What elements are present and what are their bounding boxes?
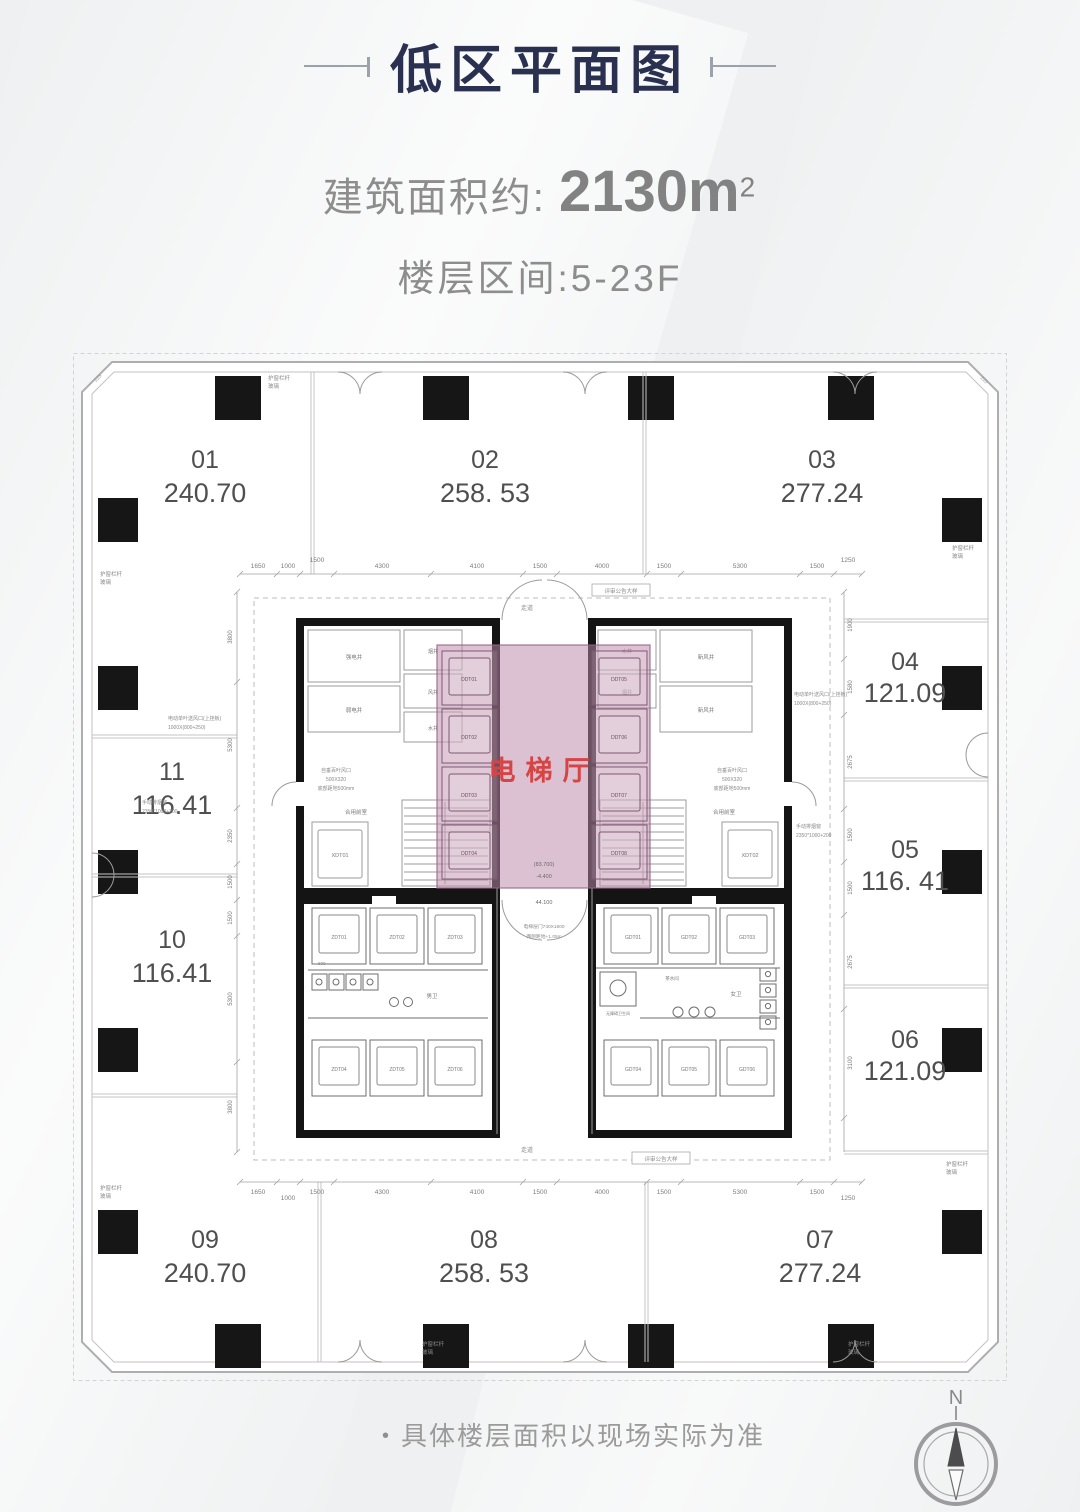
svg-text:5300: 5300 <box>228 738 234 752</box>
elevator-label: ZDT03 <box>447 935 463 941</box>
room-label: 新风井 <box>698 653 715 661</box>
elevator-label: DDT03 <box>461 793 477 799</box>
column <box>215 376 261 420</box>
svg-text:护窗栏杆: 护窗栏杆 <box>268 374 291 382</box>
svg-text:1500: 1500 <box>848 881 854 895</box>
area-sup: 2 <box>740 172 758 203</box>
column <box>942 666 982 710</box>
door-gap <box>784 782 792 806</box>
svg-text:4300: 4300 <box>375 563 390 570</box>
svg-text:玻璃: 玻璃 <box>952 552 964 560</box>
svg-text:258. 53: 258. 53 <box>439 1258 529 1288</box>
svg-text:1500: 1500 <box>657 563 672 570</box>
door-gap <box>296 782 304 806</box>
svg-text:03: 03 <box>808 446 836 474</box>
elevator-label: DDT08 <box>611 851 627 857</box>
column <box>423 376 469 420</box>
floor-plan-svg: 225 225 <box>72 352 1008 1382</box>
svg-text:护窗栏杆: 护窗栏杆 <box>422 1340 445 1348</box>
svg-text:10: 10 <box>158 926 186 954</box>
elevator-label: GDT06 <box>739 1067 755 1073</box>
elevator-label: DDT04 <box>461 851 477 857</box>
svg-text:1000X(800+250): 1000X(800+250) <box>794 701 832 707</box>
column <box>828 376 874 420</box>
column <box>98 666 138 710</box>
sample-label: 评审公告大样 <box>604 587 638 595</box>
svg-text:1250: 1250 <box>841 557 856 564</box>
svg-text:1500: 1500 <box>310 557 325 564</box>
elevator-hall-label: 电梯厅 <box>489 756 600 786</box>
svg-text:1900: 1900 <box>848 618 854 632</box>
elevator-label: GDT04 <box>625 1067 641 1073</box>
column <box>942 1210 982 1254</box>
svg-text:1500: 1500 <box>533 1189 548 1196</box>
svg-text:1000: 1000 <box>281 1195 296 1202</box>
vent-note: 500X320 <box>722 777 742 783</box>
svg-text:1500: 1500 <box>228 875 234 889</box>
title-rule-right <box>710 65 776 67</box>
svg-text:电动单叶送风口(上挂板): 电动单叶送风口(上挂板) <box>794 691 848 698</box>
svg-text:玻璃: 玻璃 <box>100 578 112 586</box>
elevator-label: ZDT05 <box>389 1067 405 1073</box>
svg-text:1500: 1500 <box>810 1189 825 1196</box>
door-note: 两侧距地+1.05m <box>526 933 561 940</box>
door-note: 电梯层门740X1800 <box>523 923 564 930</box>
svg-text:121.09: 121.09 <box>864 1056 947 1086</box>
vent-note: 底部距地500mm <box>318 785 355 792</box>
vent-note: 自垂百叶风口 <box>717 767 747 774</box>
dim-note: 600 <box>318 961 326 966</box>
svg-text:08: 08 <box>470 1226 498 1254</box>
column <box>942 1028 982 1072</box>
area-label: 建筑面积约: <box>323 176 546 220</box>
elevator-label: GDT05 <box>681 1067 697 1073</box>
elevator-label: GDT01 <box>625 935 641 941</box>
footnote-text: 具体楼层面积以现场实际为准 <box>401 1421 765 1451</box>
elevator-label: ZDT02 <box>389 935 405 941</box>
svg-text:06: 06 <box>891 1026 919 1054</box>
room-label: 茶水间 <box>665 975 679 982</box>
svg-text:2350*1000+200: 2350*1000+200 <box>796 833 832 839</box>
svg-text:1500: 1500 <box>657 1189 672 1196</box>
door-gap <box>692 896 716 904</box>
svg-text:04: 04 <box>891 648 919 676</box>
svg-text:4000: 4000 <box>595 1189 610 1196</box>
svg-text:07: 07 <box>806 1226 834 1254</box>
elevator-label: GDT02 <box>681 935 697 941</box>
svg-text:1000: 1000 <box>281 563 296 570</box>
title-rule-left <box>304 65 370 67</box>
svg-text:护窗栏杆: 护窗栏杆 <box>100 1184 123 1192</box>
svg-text:1500: 1500 <box>533 563 548 570</box>
svg-text:1650: 1650 <box>251 1189 266 1196</box>
svg-text:2675: 2675 <box>848 955 854 969</box>
room-label: 弱电井 <box>346 706 363 714</box>
svg-text:玻璃: 玻璃 <box>946 1168 958 1176</box>
room-label: 走道 <box>521 1146 533 1154</box>
door-gap <box>372 896 396 904</box>
elevator-label: DDT02 <box>461 735 477 741</box>
core-right-lower: 无障碍卫生间 茶水间 女卫 GDT01 GDT02 GDT03 GDT04 GD… <box>592 896 788 1134</box>
elevator-label: ZDT06 <box>447 1067 463 1073</box>
svg-text:116. 41: 116. 41 <box>861 866 949 896</box>
vent-note: 底部距地500mm <box>714 785 751 792</box>
svg-text:258. 53: 258. 53 <box>440 478 530 508</box>
elevator-label: ZDT04 <box>331 1067 347 1073</box>
page-title: 低区平面图 <box>390 28 690 103</box>
svg-text:277.24: 277.24 <box>779 1258 862 1288</box>
column <box>215 1324 261 1368</box>
footnote: •具体楼层面积以现场实际为准 <box>382 1416 765 1453</box>
svg-text:11: 11 <box>159 758 185 786</box>
svg-text:240.70: 240.70 <box>164 1258 247 1288</box>
level-mark: -4.400 <box>536 874 552 880</box>
svg-text:1500: 1500 <box>228 911 234 925</box>
title-row: 低区平面图 <box>0 28 1080 103</box>
svg-text:2675: 2675 <box>848 755 854 769</box>
room-label: 走道 <box>521 604 533 612</box>
vent-note: 500X320 <box>326 777 346 783</box>
svg-text:5300: 5300 <box>733 563 748 570</box>
elevator-label: ZDT01 <box>331 935 347 941</box>
room-label: 合用前室 <box>713 808 736 816</box>
svg-text:4100: 4100 <box>470 563 485 570</box>
room-label: 强电井 <box>346 653 363 661</box>
svg-text:116.41: 116.41 <box>132 958 213 988</box>
svg-text:3800: 3800 <box>228 630 234 644</box>
elevator-label: GDT03 <box>739 935 755 941</box>
svg-text:277.24: 277.24 <box>781 478 864 508</box>
building-area-line: 建筑面积约: 2130m2 <box>0 158 1080 225</box>
room-label: 合用前室 <box>345 808 368 816</box>
level-mark: 44.100 <box>536 900 553 906</box>
svg-text:1000X(800+250): 1000X(800+250) <box>168 725 206 731</box>
footnote-bullet: • <box>382 1425 391 1447</box>
svg-text:3800: 3800 <box>228 1100 234 1114</box>
svg-text:1500: 1500 <box>848 828 854 842</box>
svg-text:1500: 1500 <box>310 1189 325 1196</box>
column <box>628 1324 674 1368</box>
svg-text:护窗栏杆: 护窗栏杆 <box>100 570 123 578</box>
compass-north-label: N <box>949 1387 963 1409</box>
svg-text:1500: 1500 <box>810 563 825 570</box>
svg-text:01: 01 <box>191 446 219 474</box>
svg-text:02: 02 <box>471 446 499 474</box>
svg-text:09: 09 <box>191 1226 219 1254</box>
room-label: 女卫 <box>730 990 742 998</box>
sample-label: 评审公告大样 <box>644 1155 678 1163</box>
svg-text:护窗栏杆: 护窗栏杆 <box>946 1160 969 1168</box>
svg-text:3100: 3100 <box>848 1056 854 1070</box>
compass: N <box>896 1386 1016 1512</box>
svg-text:2350*1000+200: 2350*1000+200 <box>142 809 178 815</box>
svg-text:手动排烟窗: 手动排烟窗 <box>142 799 167 806</box>
svg-text:玻璃: 玻璃 <box>422 1348 434 1356</box>
svg-text:2350: 2350 <box>228 829 234 843</box>
svg-text:手动排烟窗: 手动排烟窗 <box>796 823 821 830</box>
room-label: 男卫 <box>426 993 438 1000</box>
svg-text:玻璃: 玻璃 <box>268 382 280 390</box>
compass-needle-north <box>948 1428 964 1466</box>
room-label: 新风井 <box>698 706 715 714</box>
floor-range: 楼层区间:5-23F <box>0 248 1080 302</box>
svg-text:1250: 1250 <box>841 1195 856 1202</box>
svg-text:121.09: 121.09 <box>864 678 947 708</box>
column <box>628 376 674 420</box>
elevator-hall: DDT01 DDT02 DDT03 DDT04 DDT05 DDT06 DDT0… <box>437 645 650 888</box>
svg-text:电动单叶送风口(上挂板): 电动单叶送风口(上挂板) <box>168 715 222 722</box>
vent-note: 自垂百叶风口 <box>321 767 351 774</box>
column <box>942 498 982 542</box>
svg-text:4000: 4000 <box>595 563 610 570</box>
svg-text:护窗栏杆: 护窗栏杆 <box>952 544 975 552</box>
elevator-label: XDT02 <box>741 853 758 859</box>
elevator-label: DDT01 <box>461 677 477 683</box>
svg-text:1580: 1580 <box>848 680 854 694</box>
svg-text:05: 05 <box>891 836 919 864</box>
floorplan-poster: 低区平面图 建筑面积约: 2130m2 楼层区间:5-23F 225 225 <box>0 0 1080 1512</box>
svg-text:4100: 4100 <box>470 1189 485 1196</box>
level-mark: (83.700) <box>534 862 555 868</box>
elevator-label: XDT01 <box>331 853 348 859</box>
column <box>98 1210 138 1254</box>
elevator-label: DDT05 <box>611 677 627 683</box>
elevator-label: DDT07 <box>611 793 627 799</box>
svg-text:护窗栏杆: 护窗栏杆 <box>848 1340 871 1348</box>
svg-text:240.70: 240.70 <box>164 478 247 508</box>
svg-text:玻璃: 玻璃 <box>100 1192 112 1200</box>
svg-text:5300: 5300 <box>228 992 234 1006</box>
svg-text:玻璃: 玻璃 <box>848 1348 860 1356</box>
core-left-lower: ZDT01 ZDT02 ZDT03 ZDT04 ZDT05 ZDT06 男卫 6… <box>300 896 496 1134</box>
column <box>98 498 138 542</box>
column <box>98 1028 138 1072</box>
svg-text:4300: 4300 <box>375 1189 390 1196</box>
room-label: 无障碍卫生间 <box>606 1010 630 1016</box>
area-value: 2130m <box>559 159 740 224</box>
elevator-label: DDT06 <box>611 735 627 741</box>
svg-text:5300: 5300 <box>733 1189 748 1196</box>
svg-text:1650: 1650 <box>251 563 266 570</box>
